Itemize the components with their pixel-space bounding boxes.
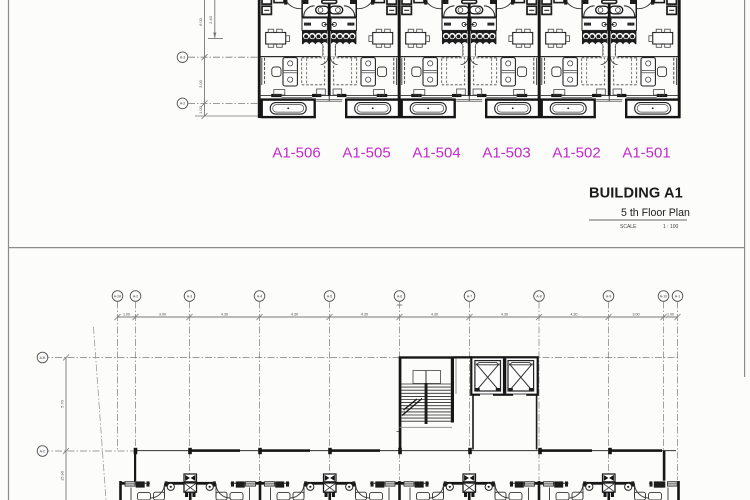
svg-text:1.00: 1.00: [198, 105, 203, 114]
svg-text:A-1: A-1: [675, 294, 680, 298]
svg-text:A-2: A-2: [133, 294, 138, 298]
svg-text:A-10: A-10: [660, 294, 667, 298]
svg-text:A1-504: A1-504: [412, 145, 460, 162]
svg-text:15.90: 15.90: [59, 470, 64, 481]
svg-text:A1-503: A1-503: [482, 145, 530, 162]
svg-text:A-5: A-5: [327, 294, 332, 298]
svg-text:1.00: 1.00: [123, 312, 130, 316]
svg-text:A-2: A-2: [180, 102, 185, 106]
svg-text:A1-505: A1-505: [342, 145, 390, 162]
svg-text:A-7: A-7: [467, 294, 472, 298]
svg-text:A1-501: A1-501: [622, 145, 670, 162]
svg-text:3.00: 3.00: [198, 79, 203, 88]
svg-text:A-6: A-6: [397, 294, 402, 298]
svg-text:4.30: 4.30: [571, 312, 578, 316]
svg-text:4.30: 4.30: [431, 312, 438, 316]
svg-text:4.30: 4.30: [501, 312, 508, 316]
svg-text:A-C: A-C: [40, 449, 46, 453]
svg-text:A-3: A-3: [187, 294, 192, 298]
svg-text:A-2A: A-2A: [114, 294, 122, 298]
svg-text:A-4: A-4: [257, 294, 262, 298]
svg-text:SCALE: SCALE: [620, 224, 637, 230]
svg-text:2.40: 2.40: [208, 15, 213, 24]
svg-text:4.30: 4.30: [361, 312, 368, 316]
svg-text:4.30: 4.30: [291, 312, 298, 316]
svg-text:3.00: 3.00: [633, 312, 640, 316]
svg-text:6.00: 6.00: [198, 17, 203, 26]
svg-text:A1-506: A1-506: [272, 145, 320, 162]
svg-text:A-8: A-8: [536, 294, 541, 298]
svg-text:BUILDING A1: BUILDING A1: [589, 186, 683, 202]
svg-text:A-9: A-9: [606, 294, 611, 298]
svg-text:3.00: 3.00: [159, 312, 166, 316]
svg-text:1.00: 1.00: [667, 312, 674, 316]
svg-text:A-B: A-B: [40, 356, 46, 360]
svg-text:4.30: 4.30: [221, 312, 228, 316]
svg-text:1 : 100: 1 : 100: [663, 224, 679, 230]
svg-text:A-3: A-3: [180, 56, 185, 60]
svg-text:A1-502: A1-502: [552, 145, 600, 162]
svg-text:5.70: 5.70: [59, 399, 64, 408]
svg-text:5 th Floor Plan: 5 th Floor Plan: [621, 207, 690, 219]
